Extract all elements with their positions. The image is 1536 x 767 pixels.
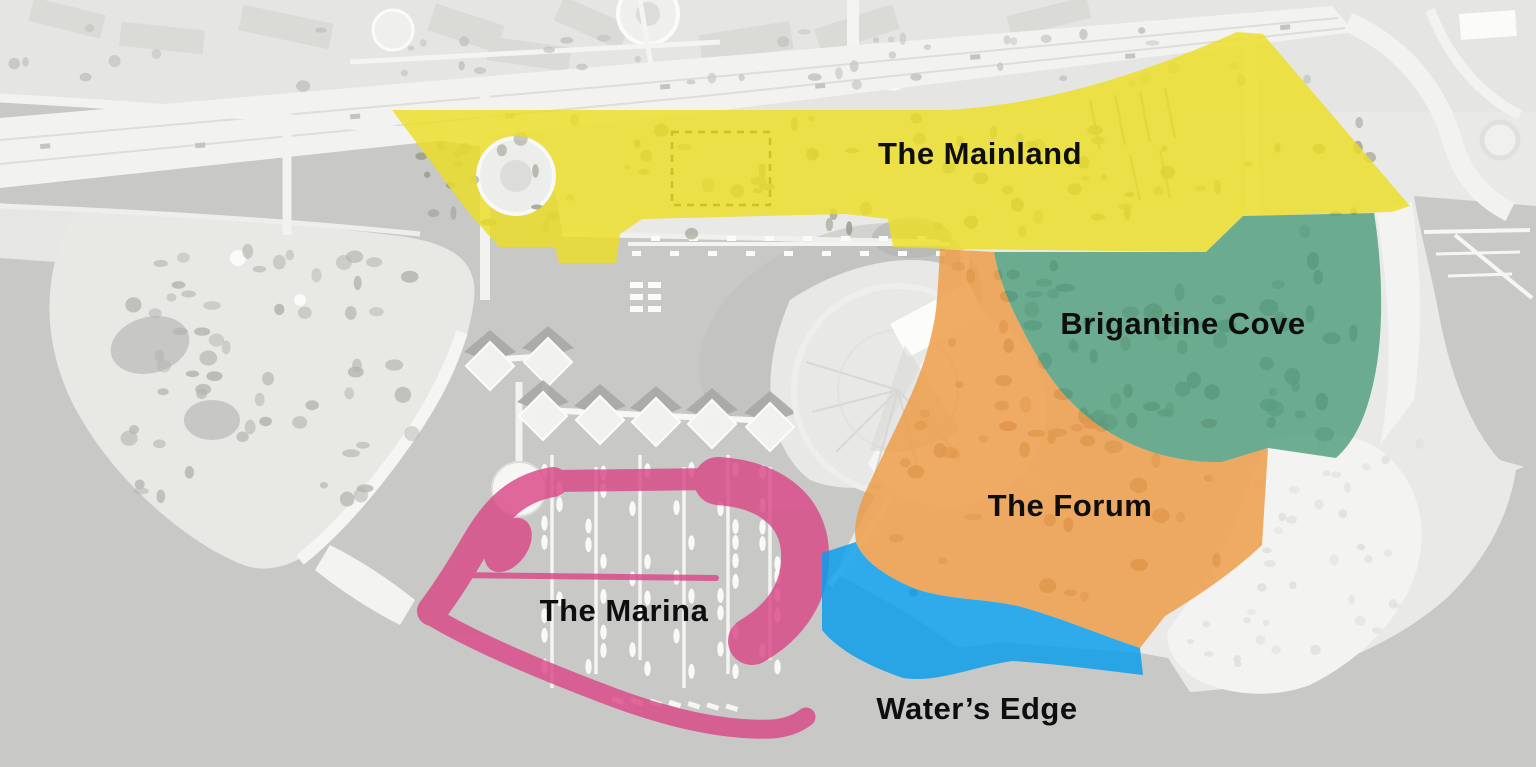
region-label-marina: The Marina [540,593,709,628]
region-label-waters-edge: Water’s Edge [876,691,1077,726]
region-label-forum: The Forum [988,488,1153,523]
region-label-mainland: The Mainland [878,136,1082,171]
region-label-brigantine-cove: Brigantine Cove [1060,306,1305,341]
plaza-circle [478,138,554,214]
site-map: The Mainland Brigantine Cove The Forum T… [0,0,1536,767]
